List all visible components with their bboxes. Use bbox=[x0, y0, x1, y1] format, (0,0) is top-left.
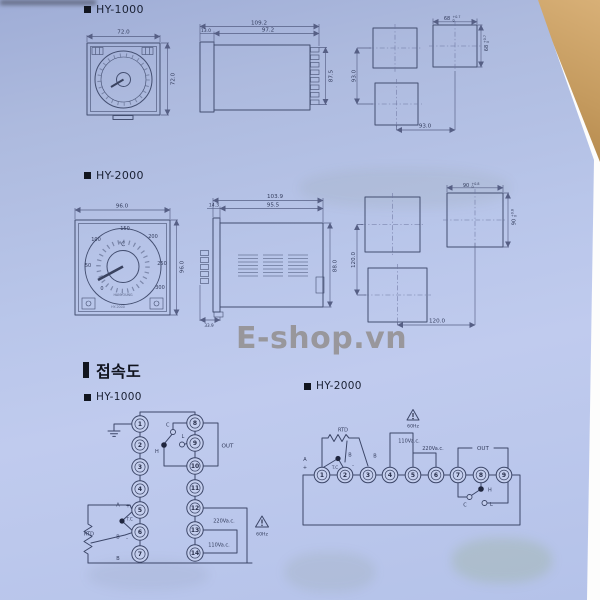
bullet-square-icon bbox=[84, 172, 91, 179]
label-out: OUT bbox=[477, 446, 489, 452]
dial-unit-celsius: ℃ bbox=[119, 241, 126, 248]
dim-cutout-pitch-v: 120.0 bbox=[351, 252, 357, 268]
label-l: L bbox=[490, 502, 493, 508]
dim-bezel-depth: 14.3 bbox=[209, 203, 219, 209]
label-60hz: 60Hz bbox=[407, 424, 419, 430]
contact-h bbox=[478, 486, 484, 492]
label-out: OUT bbox=[222, 444, 234, 450]
tc-junction bbox=[119, 518, 124, 523]
svg-text:2: 2 bbox=[343, 472, 347, 479]
terminal-8: 8 bbox=[187, 415, 203, 431]
terminal-11: 11 bbox=[187, 480, 203, 496]
terminal-6: 6 bbox=[428, 467, 444, 483]
terminal-1: 1 bbox=[314, 467, 330, 483]
dim-depth-total: 103.9 bbox=[267, 194, 283, 200]
rtd-resistor-icon bbox=[84, 520, 92, 558]
svg-text:10: 10 bbox=[191, 463, 199, 470]
terminal-4: 4 bbox=[132, 481, 148, 497]
terminal-7: 7 bbox=[132, 546, 148, 562]
svg-text:5: 5 bbox=[138, 507, 142, 514]
terminal-9: 9 bbox=[496, 467, 512, 483]
label-rtd: RTD bbox=[338, 428, 348, 434]
dim-cutout-width: 68 bbox=[444, 16, 450, 22]
dim-cutout-pitch-h: 93.0 bbox=[419, 124, 432, 130]
label-110v: 110Va.c. bbox=[208, 543, 230, 549]
svg-text:9: 9 bbox=[502, 472, 506, 479]
label-tc: T.C bbox=[331, 465, 338, 470]
svg-text:3: 3 bbox=[366, 472, 370, 479]
cutout-height-dim: 68 +0.7 0 bbox=[483, 35, 490, 51]
terminal-5: 5 bbox=[405, 467, 421, 483]
svg-text:14: 14 bbox=[191, 550, 199, 557]
contact-l bbox=[180, 442, 185, 447]
hy2000-side-view: 103.9 95.5 14.3 88.0 33.9 bbox=[200, 194, 339, 328]
label-minus: - bbox=[352, 463, 354, 469]
photo-edge-shadow bbox=[0, 0, 96, 5]
hy2000-front-view: 0 50 100 150 200 250 300 ℃ HANYOUNG HY-2… bbox=[75, 204, 186, 316]
dim-depth-body: 95.5 bbox=[267, 203, 280, 209]
label-tc: T.C bbox=[126, 517, 133, 522]
terminal-3: 3 bbox=[132, 459, 148, 475]
label-110v: 110Va.c. bbox=[398, 439, 420, 445]
label-b1: B bbox=[348, 453, 352, 459]
svg-text:1: 1 bbox=[138, 421, 142, 428]
tc-junction bbox=[335, 456, 340, 461]
header-connection-diagram: 접속도 bbox=[83, 358, 141, 382]
dial-tick-250: 250 bbox=[157, 261, 167, 267]
terminal-8: 8 bbox=[473, 467, 489, 483]
svg-text:3: 3 bbox=[138, 464, 142, 471]
terminal-9: 9 bbox=[187, 435, 203, 451]
brand-text: HANYOUNG bbox=[113, 293, 133, 297]
header-hy2000-wiring: HY-2000 bbox=[304, 380, 362, 392]
svg-text:4: 4 bbox=[388, 472, 392, 479]
dim-cutout-width: 90 bbox=[463, 183, 469, 189]
label-plus: + bbox=[126, 504, 130, 510]
terminal-4: 4 bbox=[382, 467, 398, 483]
contact-h bbox=[161, 442, 167, 448]
label-c: C bbox=[166, 423, 170, 429]
dim-cutout-height: 68 bbox=[484, 45, 490, 51]
terminal-13: 13 bbox=[187, 522, 203, 538]
terminal-2: 2 bbox=[337, 467, 353, 483]
svg-text:7: 7 bbox=[456, 472, 460, 479]
cutout-tolerance-zero: 0 bbox=[514, 215, 518, 217]
terminal-2: 2 bbox=[132, 437, 148, 453]
header-hy1000-wiring: HY-1000 bbox=[84, 391, 142, 403]
dial-tick-150: 150 bbox=[120, 226, 130, 232]
svg-text:6: 6 bbox=[434, 472, 438, 479]
dim-depth-total: 109.2 bbox=[251, 21, 267, 27]
bullet-square-icon bbox=[304, 383, 311, 390]
label-plus: + bbox=[303, 465, 307, 471]
svg-text:11: 11 bbox=[191, 485, 199, 492]
label-b2: B bbox=[116, 556, 120, 562]
terminal-teeth bbox=[311, 48, 320, 105]
hy1000-side-view: 109.2 97.2 13.0 87.5 bbox=[200, 21, 335, 113]
terminal-3: 3 bbox=[360, 467, 376, 483]
dial-tick-200: 200 bbox=[148, 234, 158, 240]
header-hy2000-dimensions: HY-2000 bbox=[84, 169, 144, 182]
bleed-through-smudge bbox=[452, 538, 552, 583]
bullet-square-icon bbox=[84, 6, 91, 13]
hy1000-panel-cutout: 93.0 93.0 68 +0.7 0 68 +0.7 0 bbox=[352, 15, 491, 130]
dial-tick-0: 0 bbox=[100, 286, 103, 292]
dial-tick-300: 300 bbox=[155, 285, 165, 291]
label-c: C bbox=[463, 503, 467, 509]
terminal-teeth bbox=[201, 251, 209, 284]
dim-front-height: 72.0 bbox=[171, 72, 177, 85]
dim-depth-body: 97.2 bbox=[262, 28, 274, 34]
ground-icon bbox=[108, 431, 120, 436]
cutout-tolerance-zero: 0 bbox=[453, 18, 455, 22]
cutout-tolerance-zero: 0 bbox=[486, 41, 490, 43]
svg-text:7: 7 bbox=[138, 551, 142, 558]
dim-front-height: 96.0 bbox=[180, 260, 186, 273]
dim-side-height: 87.5 bbox=[329, 69, 335, 82]
dial-tick-50: 50 bbox=[85, 263, 91, 269]
label-60hz: 60Hz bbox=[256, 532, 268, 538]
hy1000-wiring-diagram: C H L OUT A + T.C B - RTD B 220Va.c. 110… bbox=[75, 405, 300, 600]
header-label: HY-2000 bbox=[316, 380, 362, 392]
label-220v: 220Va.c. bbox=[422, 446, 444, 452]
header-label: HY-1000 bbox=[96, 391, 142, 403]
label-b2: B bbox=[373, 454, 377, 460]
label-minus: - bbox=[126, 536, 128, 542]
wires bbox=[84, 412, 252, 563]
eshop-watermark: E-shop.vn bbox=[236, 321, 407, 356]
label-h: H bbox=[155, 449, 159, 455]
svg-text:4: 4 bbox=[138, 486, 142, 493]
svg-text:8: 8 bbox=[193, 420, 197, 427]
svg-text:8: 8 bbox=[479, 472, 483, 479]
label-rtd: RTD bbox=[84, 532, 94, 538]
label-a: A bbox=[116, 503, 120, 509]
svg-text:5: 5 bbox=[411, 472, 415, 479]
bullet-square-icon bbox=[84, 394, 91, 401]
terminal-1: 1 bbox=[132, 416, 148, 432]
terminal-6: 6 bbox=[132, 524, 148, 540]
svg-text:2: 2 bbox=[138, 442, 142, 449]
dim-cutout-pitch-h: 120.0 bbox=[429, 319, 445, 325]
terminal-12: 12 bbox=[187, 500, 203, 516]
contact-c bbox=[467, 495, 472, 500]
hy1000-front-view: 72.0 72.0 bbox=[87, 30, 177, 120]
dim-bezel-depth: 13.0 bbox=[201, 28, 211, 34]
terminal-7: 7 bbox=[450, 467, 466, 483]
cutout-height-dim: 90 +0.8 0 bbox=[510, 209, 517, 225]
hy2000-dimension-drawing: 0 50 100 150 200 250 300 ℃ HANYOUNG HY-2… bbox=[68, 182, 550, 340]
dim-bottom: 33.9 bbox=[204, 323, 214, 328]
hy2000-wiring-diagram: RTD A + B - B T.C 60Hz 110Va.c. 220Va.c.… bbox=[295, 400, 555, 535]
label-a: A bbox=[303, 457, 307, 463]
photo-of-datasheet: HY-1000 HY-2000 접속도 HY-1000 HY-2000 bbox=[0, 0, 600, 600]
terminal-10: 10 bbox=[187, 458, 203, 474]
svg-text:6: 6 bbox=[138, 529, 142, 536]
terminal-14: 14 bbox=[187, 545, 203, 561]
header-label: HY-2000 bbox=[96, 169, 144, 182]
label-h: H bbox=[488, 488, 492, 494]
svg-text:12: 12 bbox=[191, 505, 199, 512]
dial-tick-100: 100 bbox=[91, 237, 101, 243]
svg-text:1: 1 bbox=[320, 472, 324, 479]
header-label: 접속도 bbox=[96, 358, 141, 382]
label-220v: 220Va.c. bbox=[213, 519, 235, 525]
labels: C H L OUT A + T.C B - RTD B 220Va.c. 110… bbox=[84, 423, 268, 563]
bullet-bar-icon bbox=[83, 362, 89, 378]
dim-front-width: 96.0 bbox=[116, 204, 129, 210]
rtd-resistor-icon bbox=[328, 435, 359, 442]
label-l: L bbox=[182, 434, 185, 440]
terminals-row: 1 2 3 4 5 6 7 8 9 bbox=[314, 467, 512, 483]
contact-l bbox=[482, 501, 487, 506]
svg-text:13: 13 bbox=[191, 527, 199, 534]
terminals-left: 1 2 3 4 5 6 7 bbox=[132, 416, 148, 562]
hy1000-dimension-drawing: 72.0 72.0 109.2 97.2 bbox=[78, 14, 548, 144]
dim-cutout-pitch-v: 93.0 bbox=[352, 69, 358, 82]
dim-cutout-height: 90 bbox=[512, 219, 518, 225]
svg-text:9: 9 bbox=[193, 440, 197, 447]
model-text: HY-2000 bbox=[111, 305, 125, 309]
hy2000-panel-cutout: 120.0 120.0 90 +0.8 0 90 +0.8 0 bbox=[351, 182, 518, 325]
cutout-tolerance-zero: 0 bbox=[472, 185, 474, 189]
label-b1: B bbox=[116, 535, 120, 541]
terminal-5: 5 bbox=[132, 502, 148, 518]
contact-c bbox=[171, 430, 176, 435]
dim-front-width: 72.0 bbox=[117, 30, 130, 36]
dim-side-height: 88.0 bbox=[333, 259, 339, 272]
